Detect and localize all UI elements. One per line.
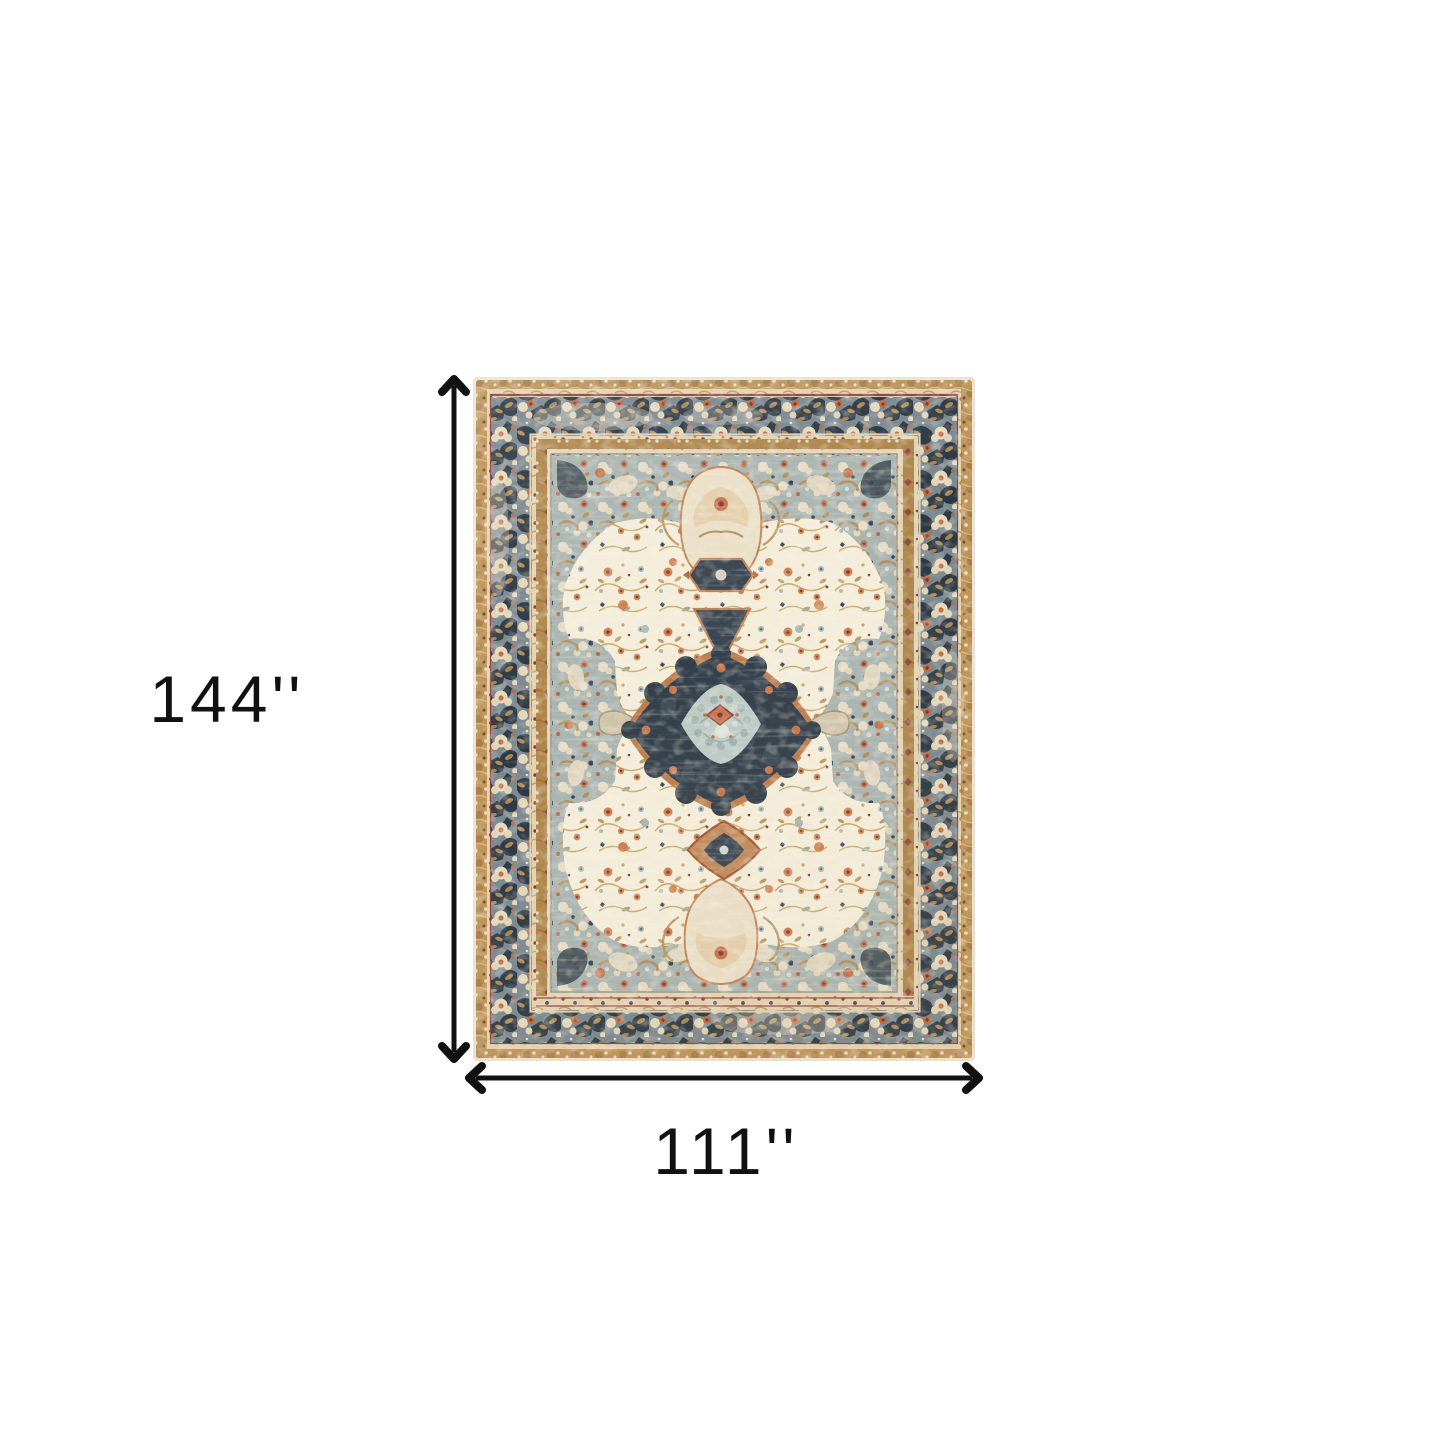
svg-text:144'': 144'' (149, 662, 304, 736)
svg-text:111'': 111'' (653, 1114, 799, 1188)
